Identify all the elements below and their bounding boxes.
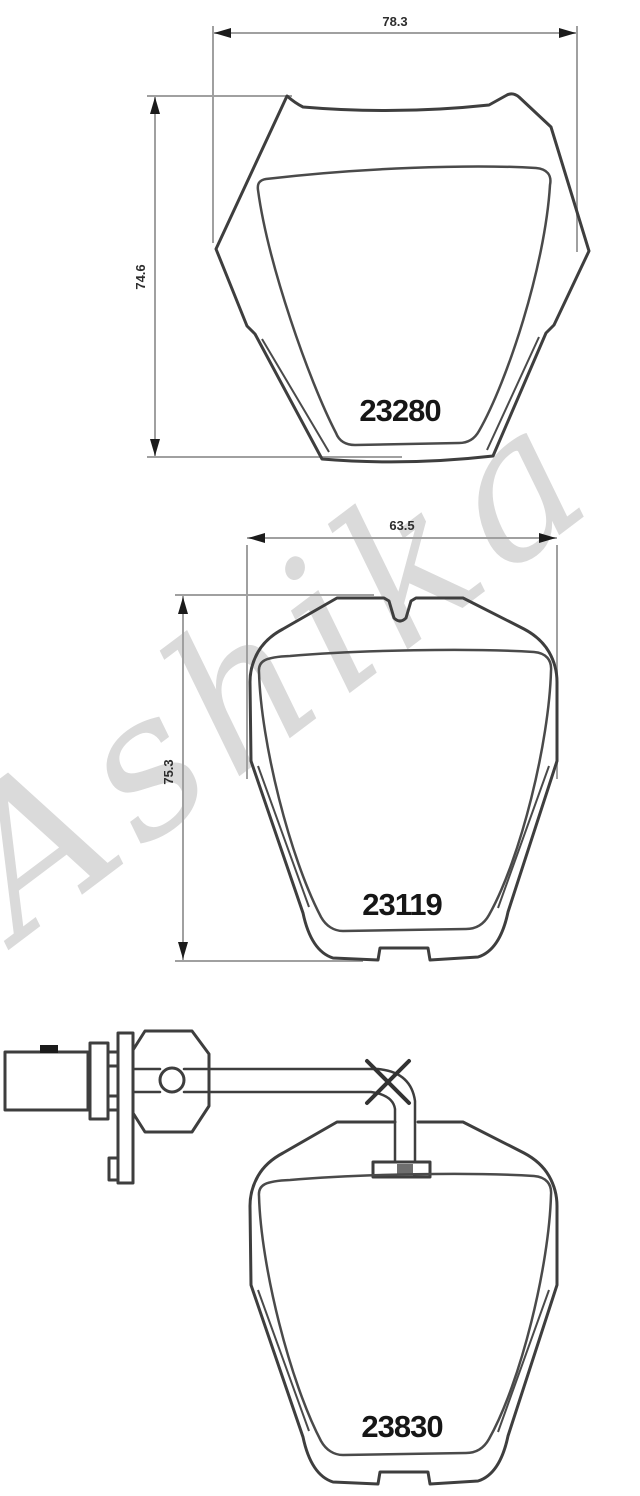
connector-flange xyxy=(90,1043,108,1119)
arrowhead-left-icon xyxy=(248,533,265,543)
chamfer-line-left xyxy=(258,766,309,907)
arrowhead-down-icon xyxy=(178,942,188,959)
sensor-wire-outer xyxy=(184,1069,415,1162)
arrowhead-down-icon xyxy=(150,439,160,456)
brake-pad-technical-drawing: Ashika 78.3 74.6 xyxy=(0,0,640,1496)
drawing-sheet: 78.3 74.6 23280 xyxy=(0,0,640,1496)
part-number-23119: 23119 xyxy=(362,887,442,922)
height-dimension-label: 74.6 xyxy=(133,264,148,289)
pad-drawing-23830: 23830 xyxy=(5,1031,557,1484)
chamfer-line-right xyxy=(498,1290,549,1432)
pad-drawing-23280: 78.3 74.6 23280 xyxy=(133,14,589,462)
arrowhead-right-icon xyxy=(559,28,576,38)
dimension-width-23119: 63.5 xyxy=(247,518,557,779)
arrowhead-up-icon xyxy=(178,597,188,614)
part-number-23830: 23830 xyxy=(361,1409,442,1444)
height-dimension-label: 75.3 xyxy=(161,759,176,784)
chamfer-line-right xyxy=(498,766,549,908)
connector-latch xyxy=(40,1045,58,1053)
arrowhead-up-icon xyxy=(150,97,160,114)
wear-sensor-connector xyxy=(5,1031,209,1183)
dimension-width-23280: 78.3 xyxy=(213,14,577,252)
width-dimension-label: 63.5 xyxy=(389,518,414,533)
mounting-bracket xyxy=(118,1033,133,1183)
dimension-height-23119: 75.3 xyxy=(161,595,374,961)
pad-drawing-23119: 63.5 75.3 23119 xyxy=(161,518,557,961)
part-number-23280: 23280 xyxy=(359,393,440,428)
width-dimension-label: 78.3 xyxy=(382,14,407,29)
bracket-foot xyxy=(109,1158,118,1180)
chamfer-line-left xyxy=(258,1290,309,1431)
connector-plug xyxy=(5,1052,88,1110)
arrowhead-right-icon xyxy=(539,533,556,543)
sensor-grommet xyxy=(160,1068,184,1092)
arrowhead-left-icon xyxy=(214,28,231,38)
sensor-wire-inner xyxy=(184,1092,395,1162)
